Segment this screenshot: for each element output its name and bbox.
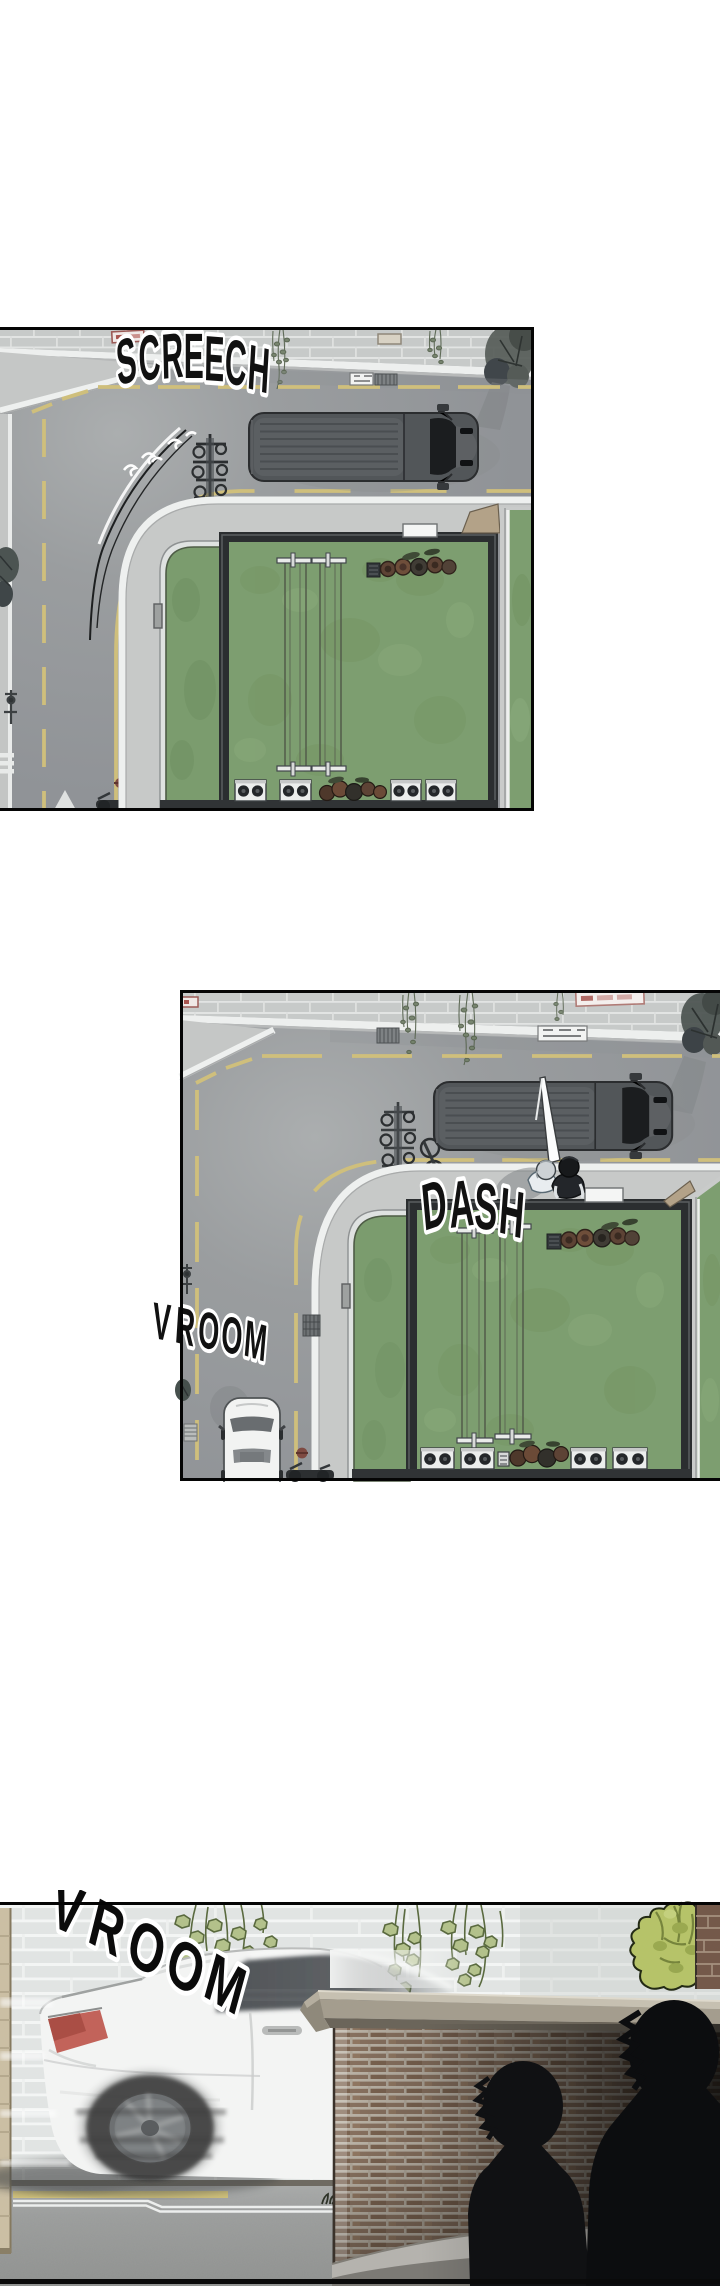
svg-text:E: E — [184, 327, 204, 392]
svg-text:A: A — [448, 1166, 475, 1243]
svg-text:H: H — [497, 1174, 527, 1254]
svg-text:H: H — [246, 331, 272, 408]
svg-text:V: V — [151, 1291, 172, 1353]
svg-text:C: C — [137, 327, 162, 396]
svg-text:E: E — [204, 327, 225, 396]
svg-text:R: R — [161, 327, 184, 393]
svg-text:O: O — [197, 1299, 222, 1362]
svg-text:C: C — [224, 327, 248, 400]
svg-text:S: S — [474, 1169, 499, 1245]
svg-text:M: M — [242, 1308, 269, 1373]
svg-text:R: R — [174, 1295, 197, 1358]
